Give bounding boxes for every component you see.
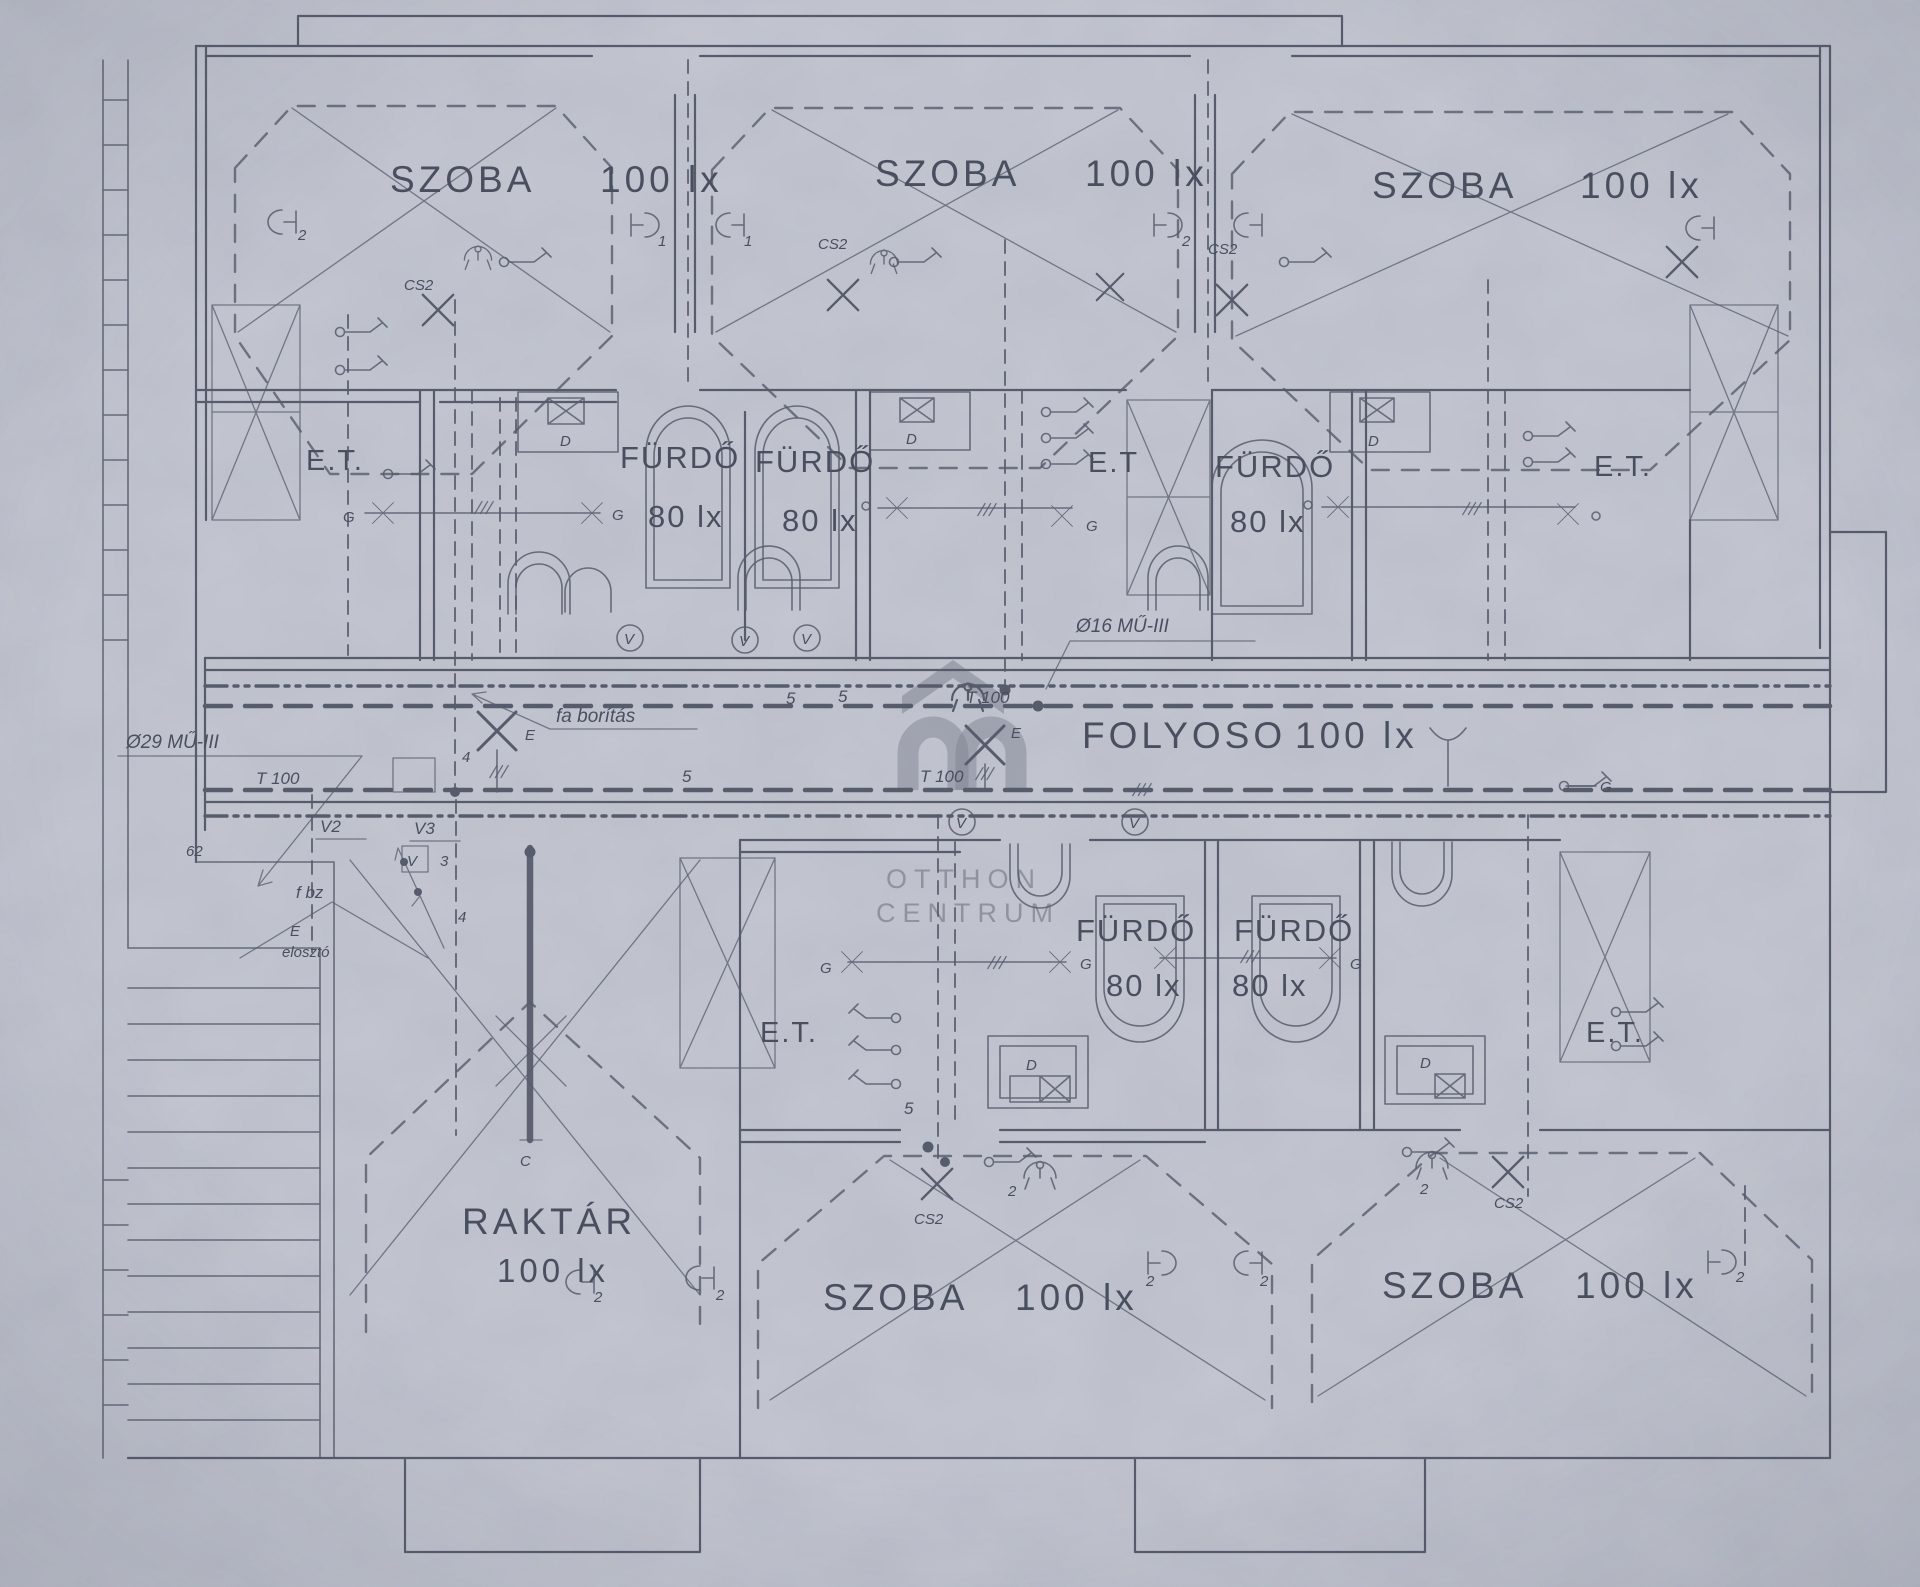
photo-vignette	[0, 0, 1920, 1587]
floor-plan-drawing: OTTHON CENTRUM	[0, 0, 1920, 1587]
scanned-floor-plan: OTTHON CENTRUM	[0, 0, 1920, 1587]
